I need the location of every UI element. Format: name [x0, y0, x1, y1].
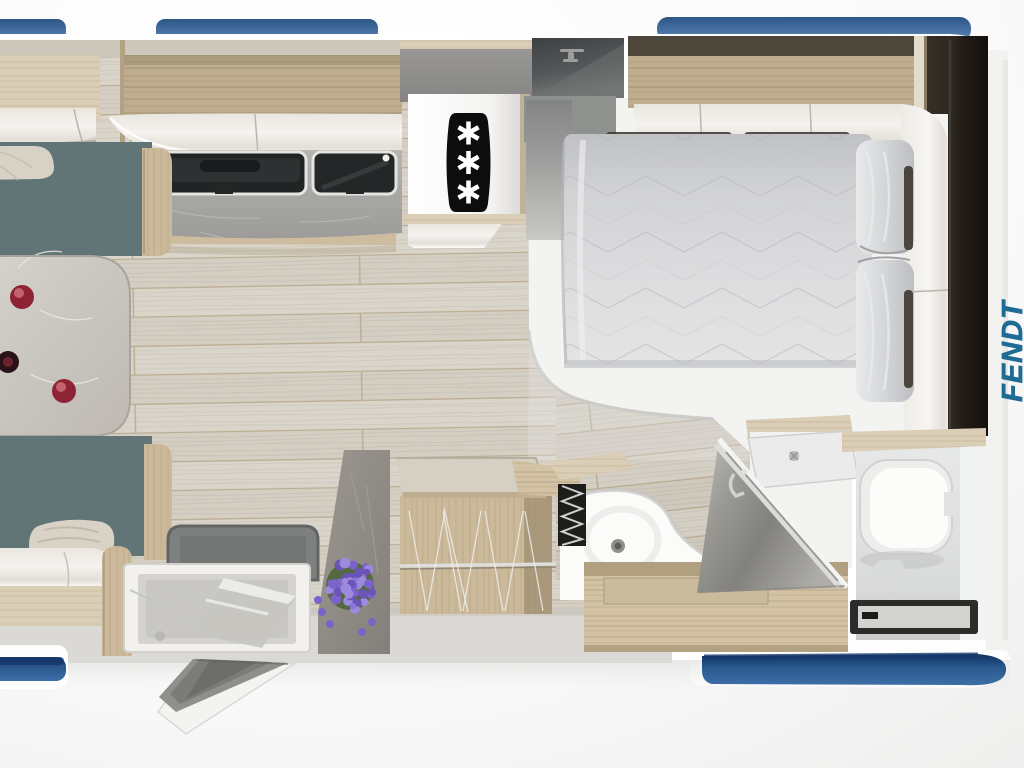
svg-text:FENDT: FENDT: [997, 299, 1024, 402]
